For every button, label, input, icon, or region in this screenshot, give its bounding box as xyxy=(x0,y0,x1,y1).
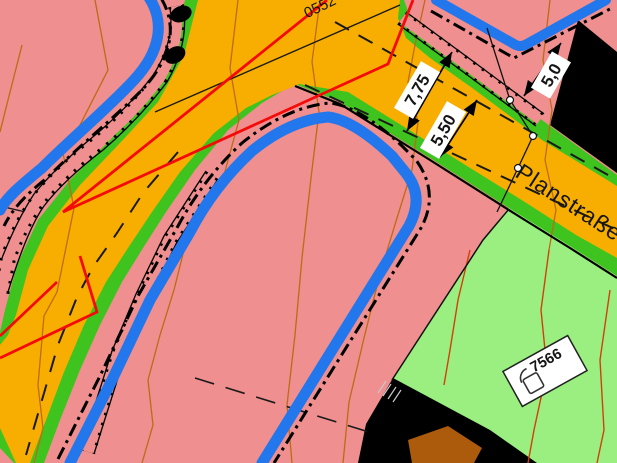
plan-canvas: 7,75 5,50 5,0 Planstraße 0552 7566 xyxy=(0,0,617,463)
survey-point xyxy=(530,133,537,140)
survey-point xyxy=(507,97,514,104)
development-plan-map: 7,75 5,50 5,0 Planstraße 0552 7566 xyxy=(0,0,617,463)
